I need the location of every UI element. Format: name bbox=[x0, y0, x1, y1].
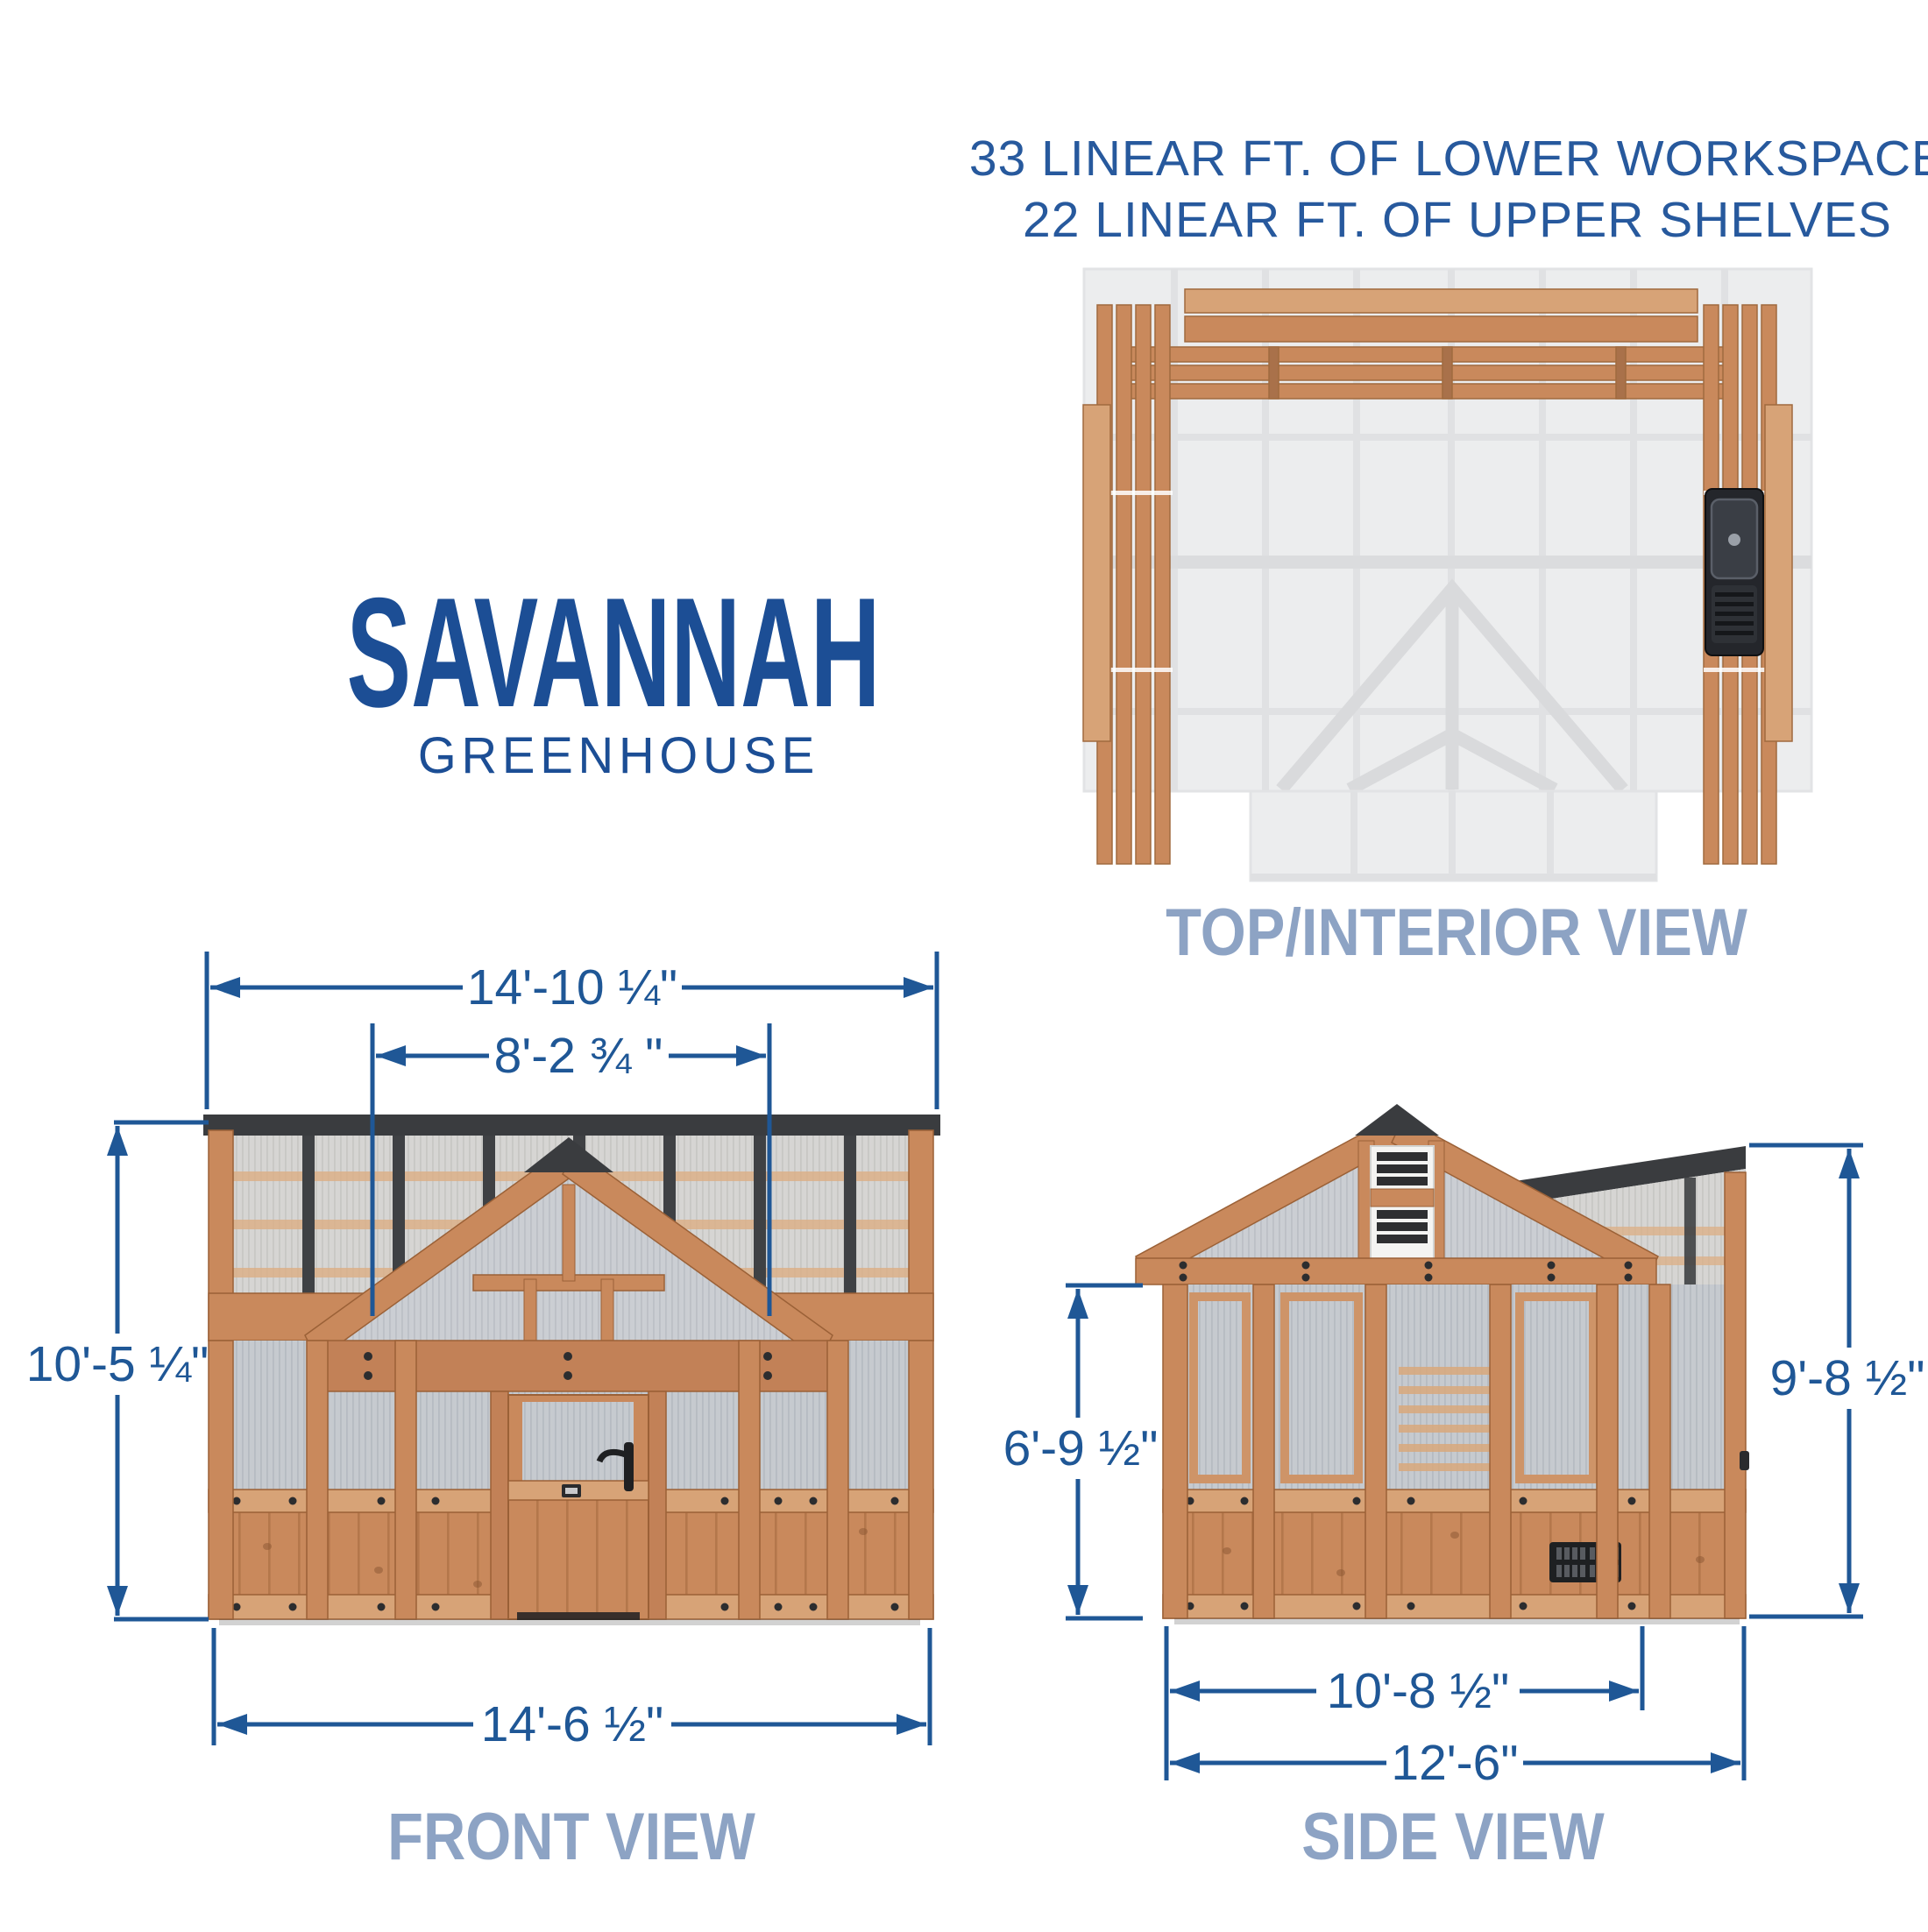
dim-front-base-width: 14'-6 ½" bbox=[214, 1628, 930, 1752]
dim-side-total-height-text: 9'-8 ½" bbox=[1770, 1350, 1925, 1406]
dim-front-gable-width-text: 8'-2 ¾ " bbox=[494, 1028, 663, 1084]
side-view-drawing bbox=[1136, 1104, 1749, 1624]
product-name: SAVANNAH bbox=[347, 566, 881, 740]
side-peak-cap bbox=[1355, 1104, 1439, 1136]
top-view-label: TOP/INTERIOR VIEW bbox=[1166, 895, 1747, 970]
upper-shelf-back bbox=[1185, 289, 1698, 313]
front-view-label: FRONT VIEW bbox=[387, 1800, 755, 1874]
greenhouse-dimension-diagram: 33 LINEAR FT. OF LOWER WORKSPACE 22 LINE… bbox=[0, 0, 1928, 1928]
left-shelf-board bbox=[1083, 405, 1110, 741]
right-shelf-board bbox=[1765, 405, 1792, 741]
top-interior-view: TOP/INTERIOR VIEW bbox=[1083, 269, 1811, 970]
front-door bbox=[491, 1391, 666, 1620]
dim-front-overall-width-text: 14'-10 ¼" bbox=[467, 959, 677, 1016]
dim-side-total-height: 9'-8 ½" bbox=[1749, 1145, 1924, 1617]
sink-drain-hole bbox=[1728, 534, 1740, 546]
side-base-shadow bbox=[1174, 1618, 1740, 1624]
product-type: GREENHOUSE bbox=[418, 727, 819, 784]
side-eave-beam bbox=[1136, 1258, 1656, 1284]
side-latch bbox=[1740, 1451, 1749, 1470]
door-glazing bbox=[522, 1402, 634, 1481]
capacity-note-upper: 22 LINEAR FT. OF UPPER SHELVES bbox=[1023, 192, 1892, 248]
dim-front-base-width-text: 14'-6 ½" bbox=[481, 1696, 664, 1752]
gable-louver-vents bbox=[1358, 1141, 1444, 1270]
back-workbench bbox=[1131, 347, 1725, 399]
front-base-shadow bbox=[219, 1619, 920, 1625]
capacity-notes: 33 LINEAR FT. OF LOWER WORKSPACE 22 LINE… bbox=[969, 131, 1928, 248]
dim-side-wall-height: 6'-9 ½" bbox=[1003, 1285, 1159, 1618]
dim-side-wall-height-text: 6'-9 ½" bbox=[1003, 1420, 1159, 1476]
capacity-note-lower: 33 LINEAR FT. OF LOWER WORKSPACE bbox=[969, 131, 1928, 187]
dim-front-height-text: 10'-5 ¼" bbox=[26, 1336, 209, 1392]
product-title: SAVANNAH GREENHOUSE bbox=[347, 566, 881, 784]
side-view-label: SIDE VIEW bbox=[1301, 1800, 1605, 1874]
dim-side-total-depth-text: 12'-6" bbox=[1391, 1735, 1518, 1791]
dim-side-main-depth-text: 10'-8 ½" bbox=[1327, 1663, 1510, 1719]
door-handle bbox=[624, 1442, 634, 1491]
dim-front-height: 10'-5 ¼" bbox=[26, 1122, 209, 1619]
sink bbox=[1705, 489, 1763, 655]
front-view-drawing bbox=[203, 1115, 940, 1625]
front-roof-cap bbox=[203, 1115, 940, 1136]
